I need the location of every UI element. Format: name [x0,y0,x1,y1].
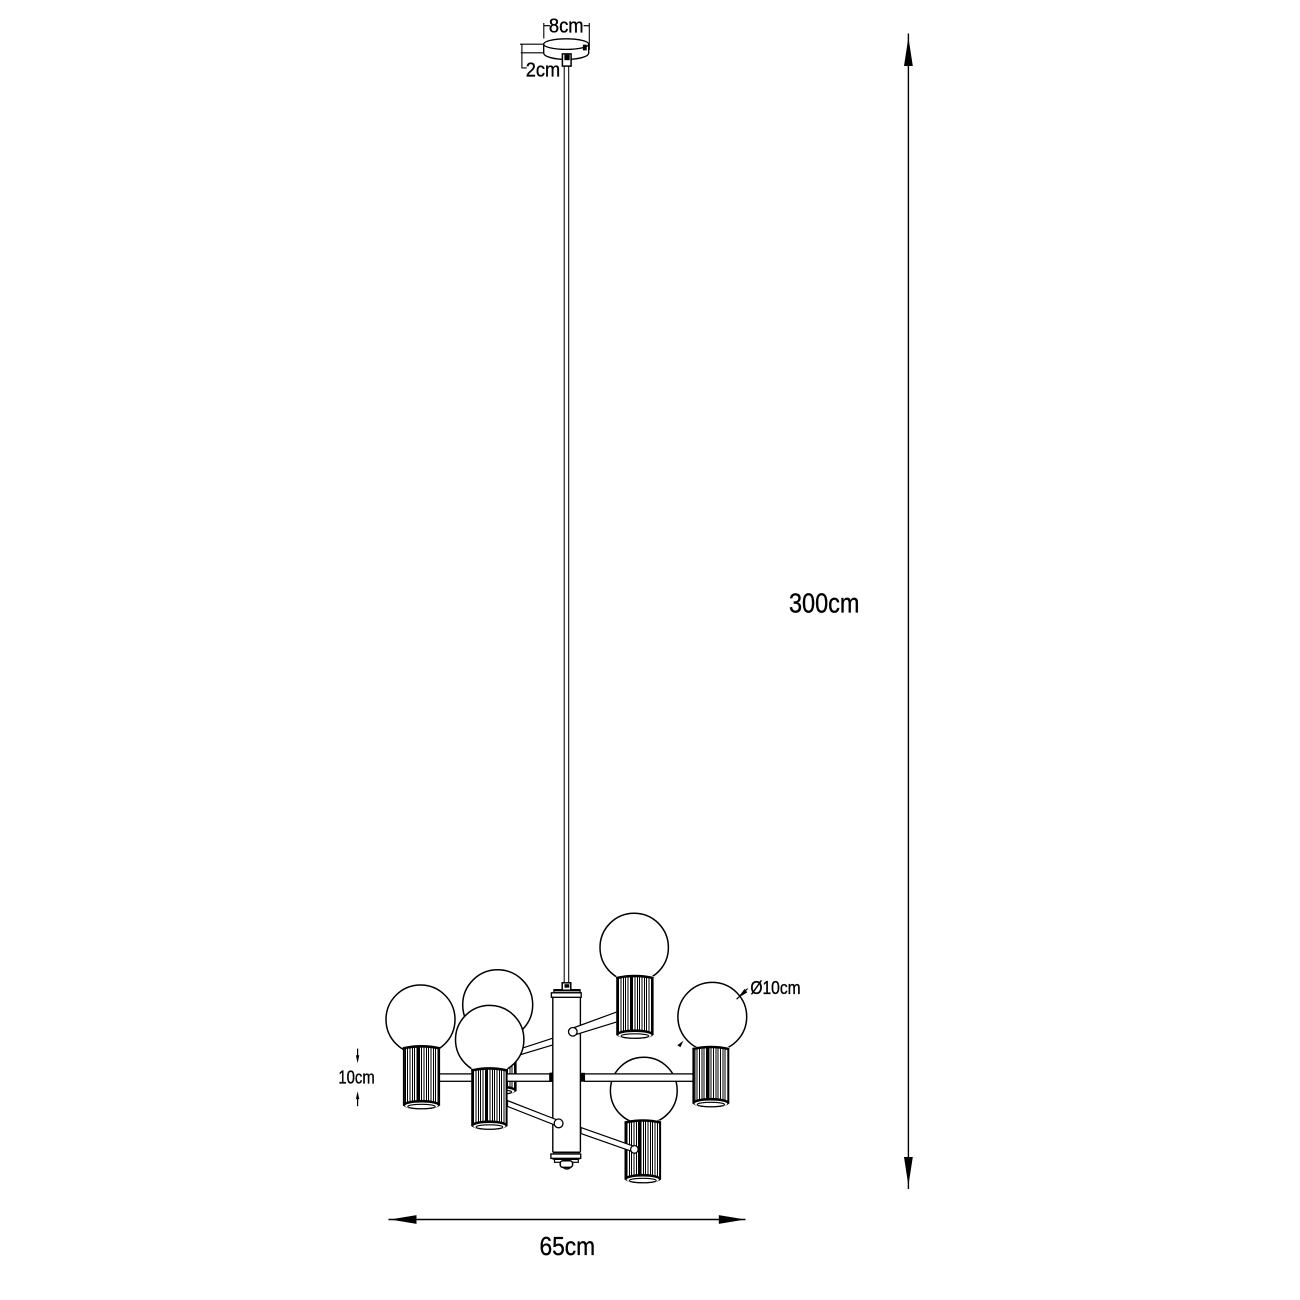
svg-text:300cm: 300cm [789,588,860,619]
svg-text:65cm: 65cm [540,1231,596,1261]
svg-text:Ø10cm: Ø10cm [750,978,800,998]
svg-text:2cm: 2cm [526,59,560,81]
svg-text:8cm: 8cm [549,15,584,37]
svg-text:10cm: 10cm [338,1067,374,1088]
